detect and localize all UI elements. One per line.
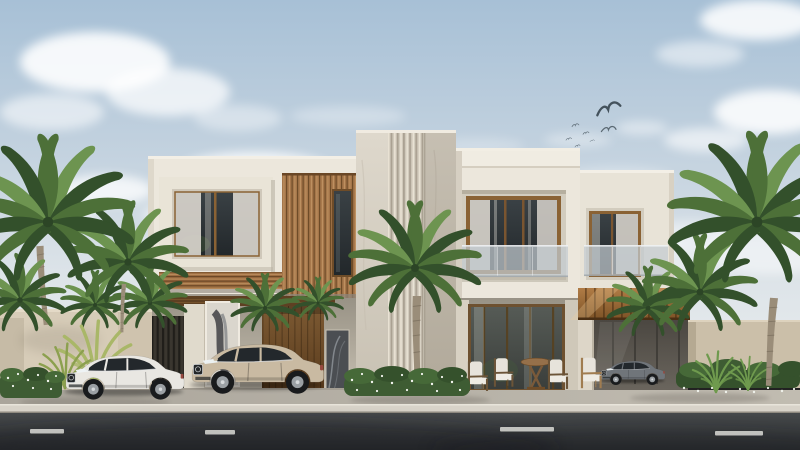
cloud (0, 94, 104, 130)
scene-canvas (0, 0, 800, 450)
cloud (616, 121, 668, 135)
villa-render (0, 0, 800, 450)
flowering-hedge-center (344, 366, 470, 396)
cloud (194, 105, 282, 131)
street (0, 390, 800, 450)
center-balcony-glass (462, 245, 568, 277)
cloud (664, 128, 748, 152)
cloud (290, 106, 406, 126)
flowering-hedge-left (0, 367, 65, 398)
curtain (233, 192, 259, 256)
cloud (656, 41, 744, 67)
left-window (159, 177, 275, 272)
slat-window (333, 190, 352, 276)
left-volume (148, 156, 365, 301)
